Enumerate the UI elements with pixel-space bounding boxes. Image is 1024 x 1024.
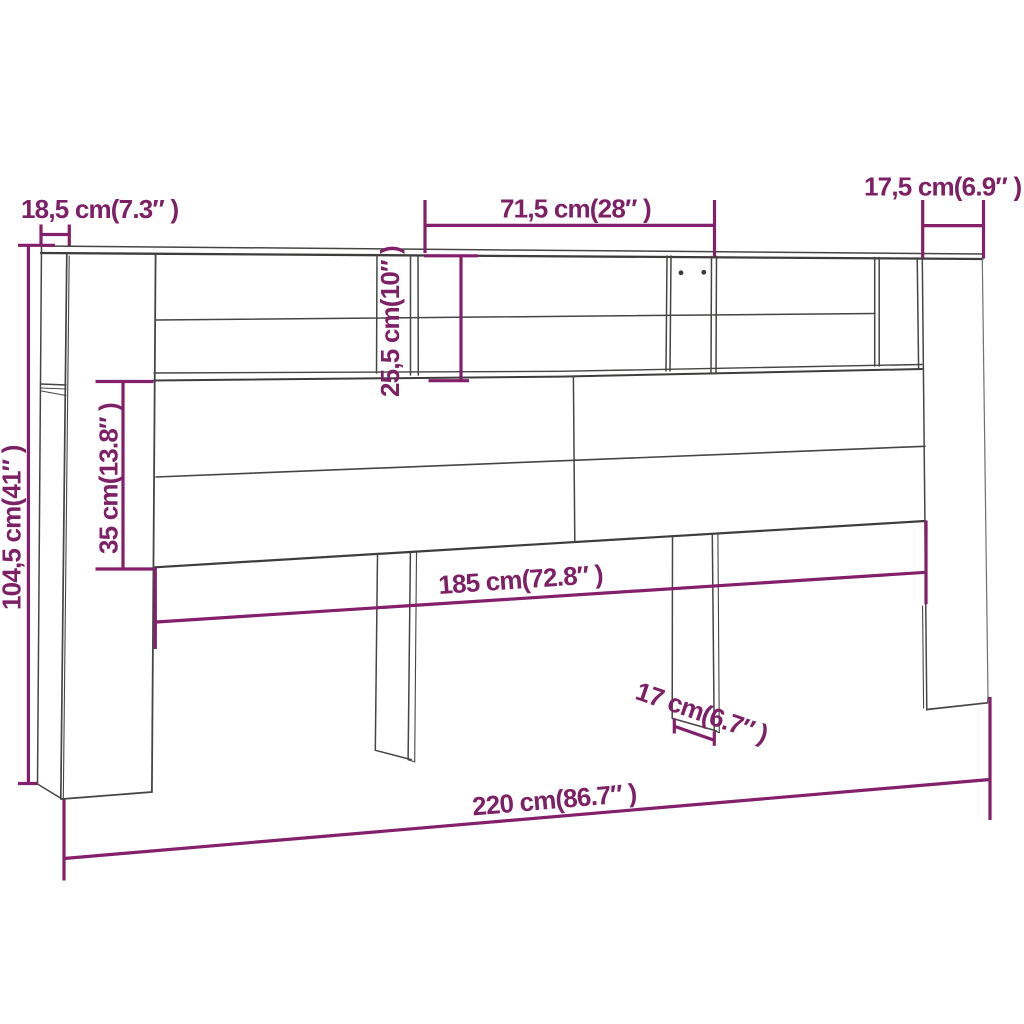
svg-text:71,5 cm(28″ ): 71,5 cm(28″ ) [500,194,651,224]
svg-text:104,5 cm(41″ ): 104,5 cm(41″ ) [0,445,27,610]
svg-text:17,5 cm(6.9″ ): 17,5 cm(6.9″ ) [864,172,1021,202]
svg-text:18,5 cm(7.3″ ): 18,5 cm(7.3″ ) [21,194,178,224]
svg-text:35 cm(13.8″ ): 35 cm(13.8″ ) [94,403,124,554]
svg-text:25,5 cm(10″ ): 25,5 cm(10″ ) [375,246,405,397]
